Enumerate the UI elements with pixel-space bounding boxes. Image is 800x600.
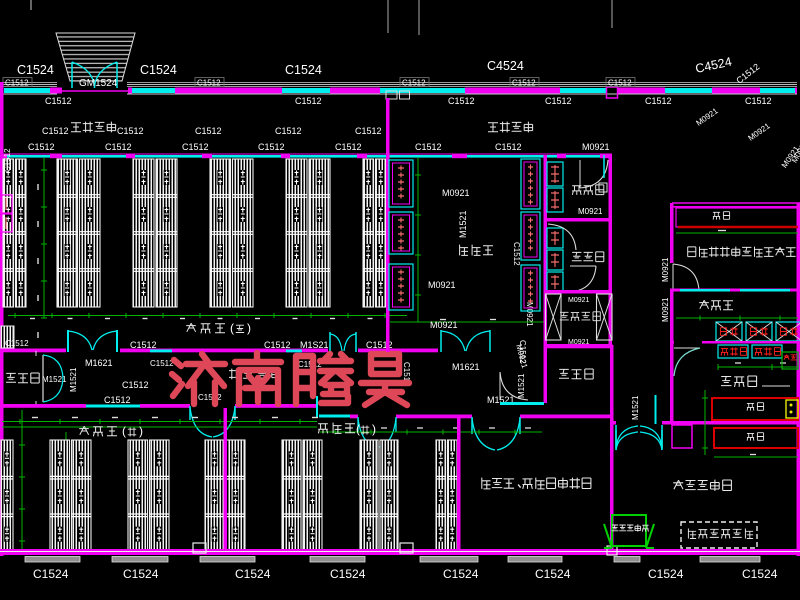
svg-text:(: ( [356,422,360,436]
svg-text:M0921: M0921 [442,188,470,198]
svg-text:M1521: M1521 [69,367,78,392]
svg-text:M0921: M0921 [525,302,534,327]
svg-text:M1621: M1621 [85,358,113,368]
svg-text:C1512: C1512 [335,142,362,152]
svg-text:C1524: C1524 [330,567,366,581]
svg-text:C1512: C1512 [150,359,174,368]
svg-text:C1512: C1512 [198,393,222,402]
svg-text:C1524: C1524 [123,567,159,581]
svg-text:M0921: M0921 [661,297,670,322]
svg-text:C1512: C1512 [258,142,285,152]
svg-text:C1512: C1512 [402,79,426,88]
svg-text:C1512: C1512 [3,148,12,172]
svg-text:M1521: M1521 [631,395,640,420]
svg-text:C1524: C1524 [17,63,54,77]
svg-text:C1512: C1512 [545,96,572,106]
svg-text:C1512: C1512 [512,242,521,266]
svg-text:C1512: C1512 [355,126,382,136]
svg-text:(: ( [230,321,234,335]
svg-text:C1524: C1524 [140,63,177,77]
svg-text:C1512: C1512 [448,96,475,106]
svg-text:M0921: M0921 [582,142,610,152]
svg-text:C1512: C1512 [5,339,29,348]
svg-text:C1512: C1512 [264,340,291,350]
svg-text:C1524: C1524 [33,567,69,581]
svg-text:M0921: M0921 [430,320,458,330]
svg-text:C1512: C1512 [512,79,536,88]
svg-text:C1512: C1512 [5,79,29,88]
svg-text:C1524: C1524 [285,63,322,77]
svg-text:C1512: C1512 [182,142,209,152]
svg-text:): ) [247,321,251,335]
svg-text:M0921: M0921 [568,297,590,304]
svg-text:): ) [372,422,376,436]
svg-text:C1512: C1512 [415,142,442,152]
svg-text:C1512: C1512 [275,126,302,136]
svg-text:C1512: C1512 [197,79,221,88]
svg-text:GM1524: GM1524 [79,78,118,89]
svg-text:C1512: C1512 [45,96,72,106]
svg-text:): ) [139,424,143,438]
svg-text:C1512: C1512 [105,142,132,152]
svg-text:M1521: M1521 [458,210,468,238]
svg-text:C1512: C1512 [745,96,772,106]
svg-text:C1524: C1524 [648,567,684,581]
svg-text:C1524: C1524 [742,567,778,581]
svg-text:C1512: C1512 [495,142,522,152]
svg-text:C1512: C1512 [645,96,672,106]
svg-text:C1524: C1524 [235,567,271,581]
svg-text:(: ( [122,424,126,438]
svg-text:M1621: M1621 [452,362,480,372]
svg-text:C1524: C1524 [535,567,571,581]
svg-text:M1521: M1521 [517,373,526,398]
svg-text:C1512: C1512 [130,340,157,350]
svg-text:M0921: M0921 [661,257,670,282]
svg-text:C1512: C1512 [122,380,149,390]
svg-text:M0921: M0921 [428,280,456,290]
svg-text:M0921: M0921 [578,207,603,216]
svg-text:C1512: C1512 [195,126,222,136]
svg-text:C4524: C4524 [487,59,524,73]
svg-text:C1512: C1512 [608,79,632,88]
svg-text:C1512: C1512 [28,142,55,152]
svg-text:C1512: C1512 [42,126,69,136]
svg-text:C1512: C1512 [295,96,322,106]
svg-text:C1524: C1524 [443,567,479,581]
svg-text:C1512: C1512 [104,395,131,405]
svg-text:C1512: C1512 [117,126,144,136]
svg-text:M1S21: M1S21 [300,340,329,350]
